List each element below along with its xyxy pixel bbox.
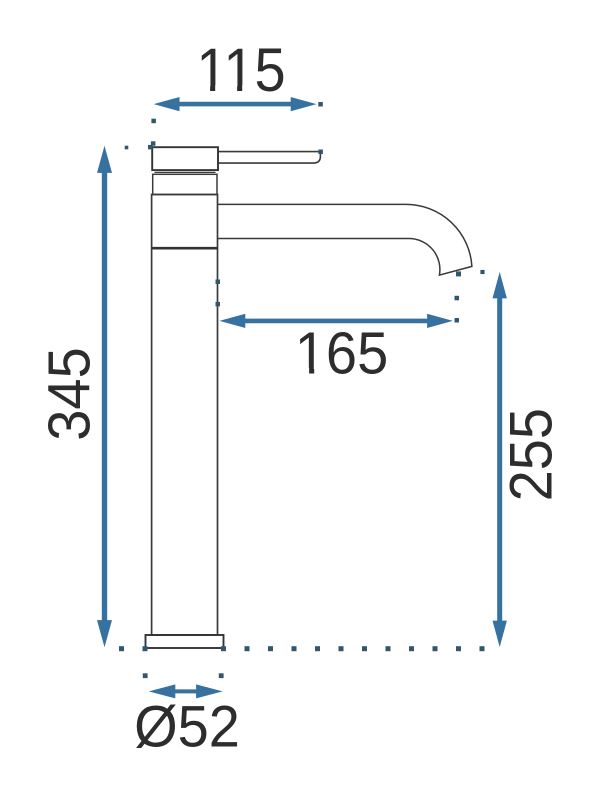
svg-text:255: 255 [498, 408, 565, 501]
svg-text:115: 115 [196, 37, 285, 105]
svg-text:345: 345 [37, 347, 103, 440]
svg-text:Ø52: Ø52 [134, 694, 240, 760]
svg-text:165: 165 [295, 321, 388, 387]
